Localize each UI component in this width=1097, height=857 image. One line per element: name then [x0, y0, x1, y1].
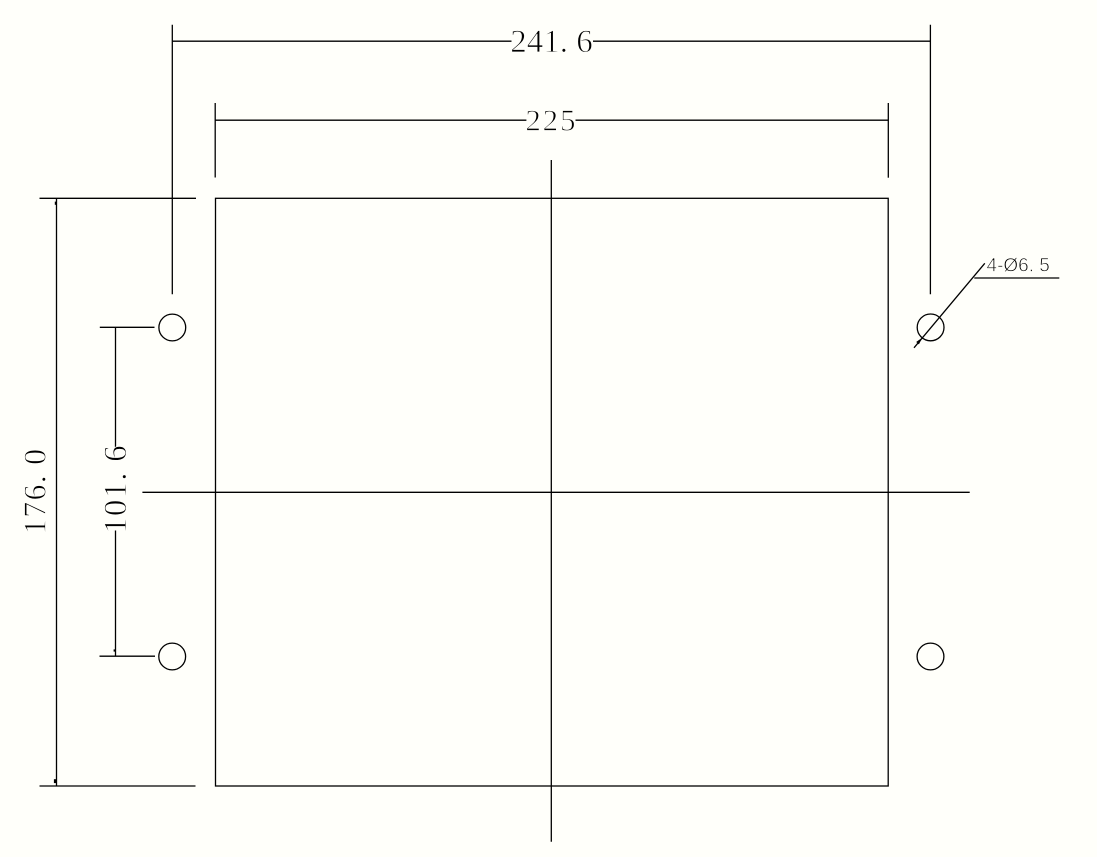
- svg-text:4-Ø6. 5: 4-Ø6. 5: [987, 255, 1050, 276]
- svg-text:101. 6: 101. 6: [98, 444, 134, 534]
- svg-text:176. 0: 176. 0: [17, 448, 53, 535]
- svg-text:225: 225: [525, 102, 577, 137]
- svg-text:241. 6: 241. 6: [510, 24, 593, 60]
